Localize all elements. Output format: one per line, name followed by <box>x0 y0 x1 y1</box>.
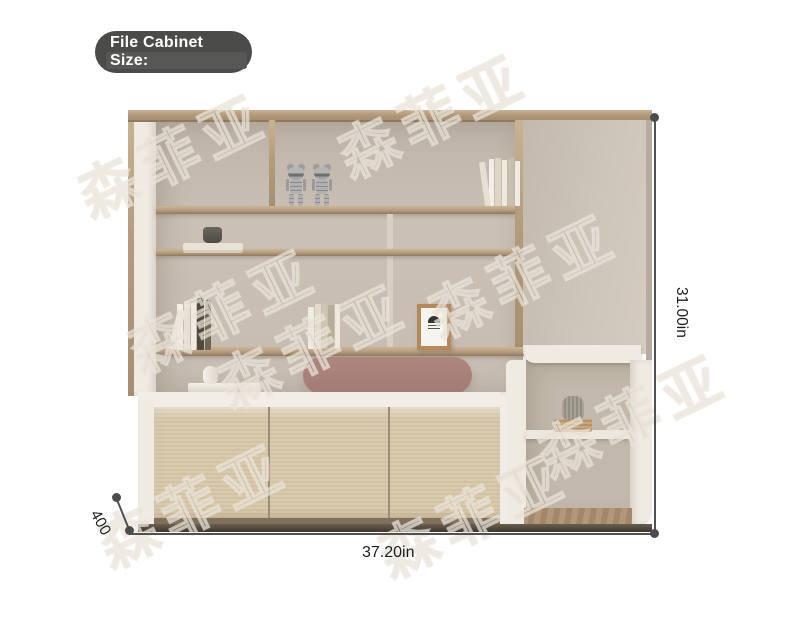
sideboard-left-side <box>138 400 154 528</box>
badge-title-line2: Size: <box>110 52 252 70</box>
side-section-left-stile <box>506 360 526 526</box>
tall-cabinet-bottom-edge <box>523 345 641 363</box>
books-icon <box>308 303 340 349</box>
frame-art <box>428 316 440 323</box>
door-divider-1 <box>268 407 270 521</box>
sideboard-top <box>138 392 520 408</box>
smoke-glass-cup-icon <box>203 227 222 243</box>
flat-book-icon <box>188 383 260 392</box>
unit-right-edge <box>646 120 652 360</box>
product-size-image: 森菲亚 森菲亚 森菲亚 森菲亚 森菲亚 森菲亚 森菲亚 森菲亚 31.00in … <box>0 0 790 617</box>
height-dimension-label: 31.00in <box>672 287 690 338</box>
height-dimension-line <box>654 118 656 534</box>
size-badge: File Cabinet Size: <box>95 31 252 73</box>
dimension-endpoint-dot <box>650 113 659 122</box>
dimension-endpoint-dot <box>650 529 659 538</box>
side-section-right-stile <box>630 360 652 526</box>
stacked-books-icon <box>183 243 243 250</box>
dimension-endpoint-dot <box>112 493 121 502</box>
shelf-2 <box>156 249 515 256</box>
glass-vase-icon <box>562 396 584 420</box>
sideboard-doors <box>154 407 504 521</box>
width-dimension-line <box>129 533 656 535</box>
dimension-endpoint-dot <box>125 526 134 535</box>
badge-title-line1: File Cabinet <box>110 34 252 52</box>
divider-mid-rows <box>387 214 393 348</box>
frame-art-line <box>428 325 440 326</box>
bear-figurine-icon <box>285 164 307 206</box>
pink-pill-shelf <box>303 357 472 394</box>
width-dimension-label: 37.20in <box>362 544 415 562</box>
left-frame-stile <box>134 116 156 396</box>
picture-frame-icon <box>417 304 451 350</box>
door-divider-2 <box>388 407 390 521</box>
tall-cabinet-door <box>523 120 648 354</box>
divider-top-row <box>269 120 275 207</box>
white-vase-icon <box>203 366 218 384</box>
shelf-1 <box>156 206 515 214</box>
storage-basket-icon <box>554 419 592 432</box>
frame-art-line <box>428 328 440 329</box>
depth-dimension-label: 400 <box>86 507 114 538</box>
bear-figurine-icon <box>311 164 333 206</box>
books-icon <box>168 298 211 350</box>
books-icon <box>482 158 520 206</box>
floor-shadow <box>138 524 652 532</box>
